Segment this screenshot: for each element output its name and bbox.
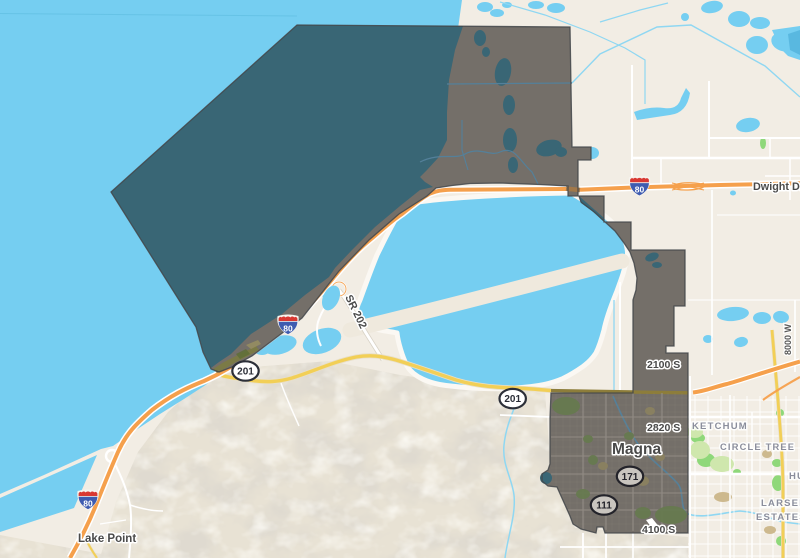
svg-text:ESTATES: ESTATES <box>756 512 800 523</box>
svg-text:HU: HU <box>789 471 800 482</box>
svg-text:201: 201 <box>504 394 521 405</box>
svg-text:201: 201 <box>237 367 254 378</box>
svg-text:80: 80 <box>283 323 293 333</box>
svg-text:4100 S: 4100 S <box>642 524 675 536</box>
svg-text:KETCHUM: KETCHUM <box>692 421 748 432</box>
svg-text:Magna: Magna <box>612 441 661 458</box>
svg-text:Lake Point: Lake Point <box>78 533 136 545</box>
svg-text:171: 171 <box>622 472 639 483</box>
svg-text:Dwight D.: Dwight D. <box>753 181 800 193</box>
svg-text:80: 80 <box>83 498 93 508</box>
svg-text:111: 111 <box>596 501 612 512</box>
svg-text:80: 80 <box>635 185 645 195</box>
svg-text:8000 W: 8000 W <box>783 323 793 355</box>
svg-text:LARSEN: LARSEN <box>761 498 800 509</box>
svg-text:2100 S: 2100 S <box>647 359 680 371</box>
svg-text:CIRCLE TREE: CIRCLE TREE <box>720 442 795 452</box>
svg-text:2820 S: 2820 S <box>647 422 680 434</box>
